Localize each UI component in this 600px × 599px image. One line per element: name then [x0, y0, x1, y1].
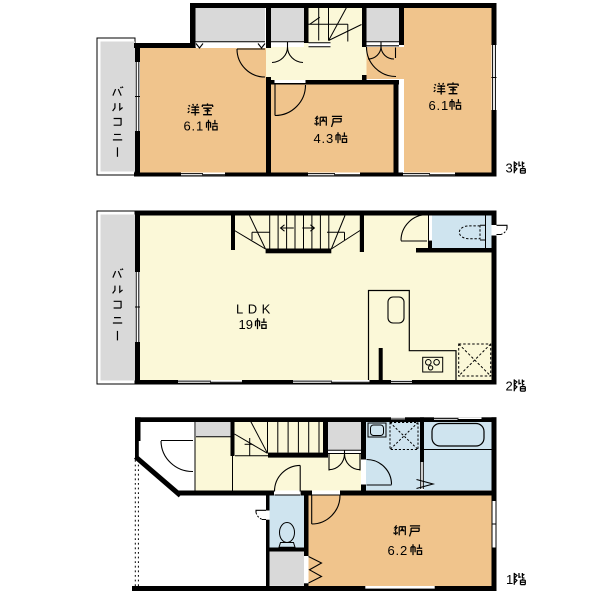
svg-text:6.1: 6.1 — [184, 119, 204, 134]
svg-text:3: 3 — [506, 161, 513, 176]
svg-text:2: 2 — [506, 379, 513, 394]
svg-text:LDK: LDK — [236, 302, 275, 317]
svg-text:4.3: 4.3 — [314, 131, 334, 146]
svg-text:6.2: 6.2 — [388, 543, 408, 558]
svg-text:1: 1 — [506, 572, 513, 587]
svg-text:19: 19 — [239, 317, 253, 332]
svg-text:6.1: 6.1 — [429, 98, 449, 113]
